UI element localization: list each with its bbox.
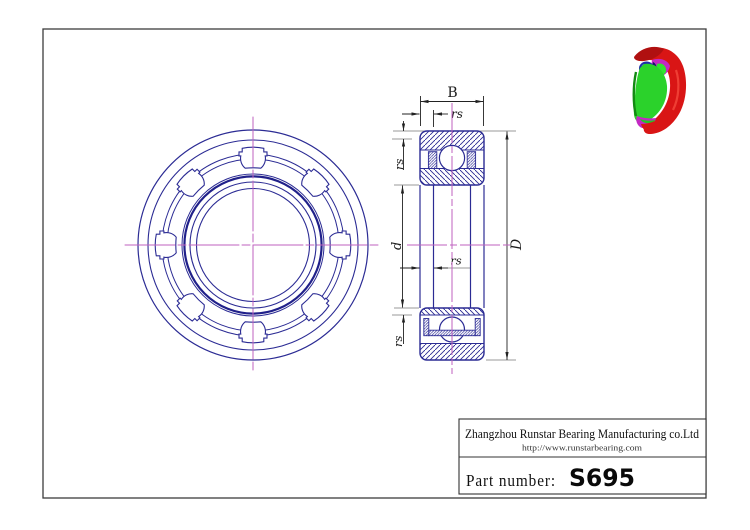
title-block: Zhangzhou Runstar Bearing Manufacturing … [459, 419, 706, 494]
dim-label-chamfer-left-upper: rs [392, 159, 406, 170]
dim-label-bore: d [390, 242, 405, 250]
technical-drawing-canvas: B rs rs d rs rs D Zhangzhou Runstar Bear… [0, 0, 750, 530]
part-number-value: S695 [569, 464, 635, 492]
dim-label-chamfer-top: rs [451, 107, 463, 121]
company-name: Zhangzhou Runstar Bearing Manufacturing … [465, 427, 700, 441]
part-number-label: Part number: [466, 471, 556, 490]
company-website: http://www.runstarbearing.com [522, 443, 642, 453]
dim-label-outer: D [509, 239, 525, 251]
dim-label-width: B [447, 85, 457, 101]
dim-label-chamfer-left-lower: rs [391, 336, 405, 347]
bearing-drawing-page: B rs rs d rs rs D Zhangzhou Runstar Bear… [0, 0, 750, 530]
